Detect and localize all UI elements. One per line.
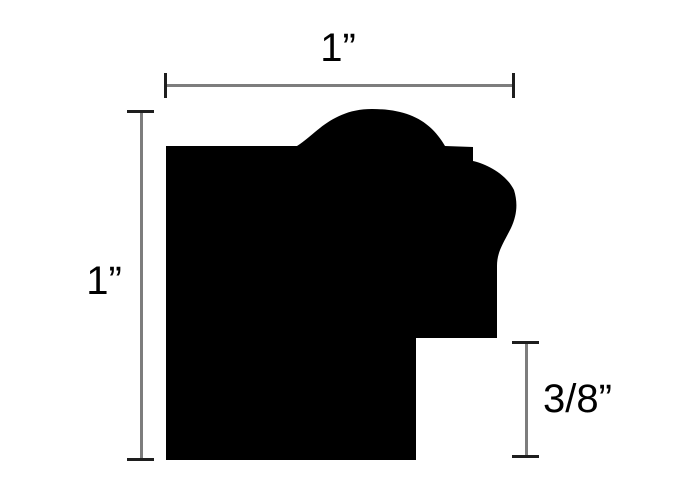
top-width-dimension-label: 1” xyxy=(320,27,356,69)
rabbet-height-dimension-label: 3/8” xyxy=(543,378,612,420)
moulding-profile-path xyxy=(166,109,516,460)
left-height-dimension-line xyxy=(140,111,143,460)
moulding-diagram-canvas: 1” 1” 3/8” xyxy=(0,0,700,500)
rabbet-height-dimension-bottom-tick xyxy=(512,455,539,458)
left-height-dimension-top-tick xyxy=(127,110,154,113)
moulding-profile-shape xyxy=(0,0,700,500)
top-width-dimension-left-tick xyxy=(164,73,167,98)
left-height-dimension-label: 1” xyxy=(86,260,122,302)
rabbet-height-dimension-top-tick xyxy=(512,341,539,344)
top-width-dimension-right-tick xyxy=(512,73,515,98)
left-height-dimension-bottom-tick xyxy=(127,458,154,461)
top-width-dimension-line xyxy=(165,84,515,87)
rabbet-height-dimension-line xyxy=(525,342,528,458)
